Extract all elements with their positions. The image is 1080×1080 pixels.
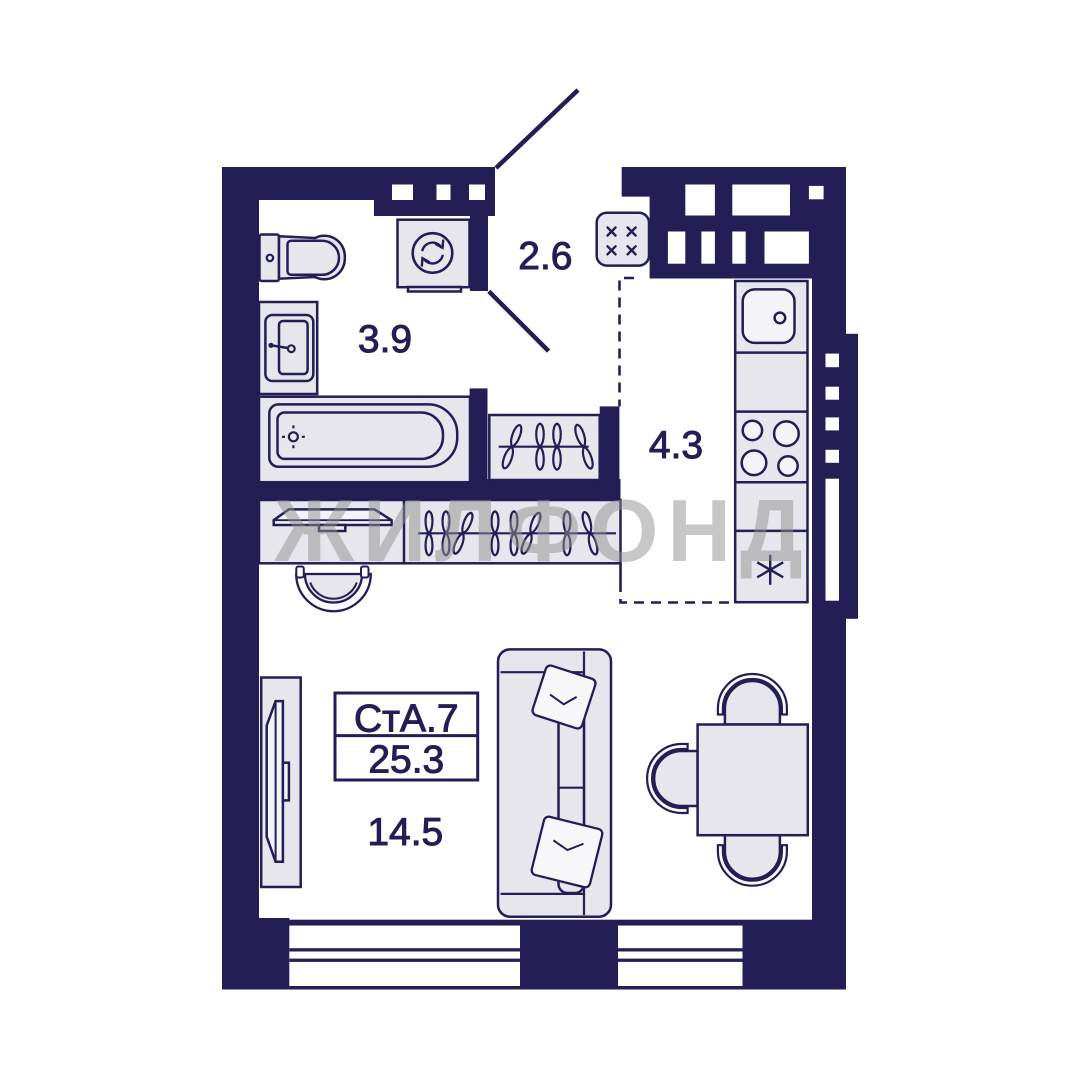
svg-text:25.3: 25.3 bbox=[368, 739, 444, 782]
svg-text:СтА.7: СтА.7 bbox=[354, 698, 459, 741]
svg-text:3.9: 3.9 bbox=[358, 318, 412, 361]
svg-text:4.3: 4.3 bbox=[649, 424, 703, 467]
svg-text:ЖИЛФОНД: ЖИЛФОНД bbox=[273, 481, 811, 580]
svg-text:2.6: 2.6 bbox=[518, 235, 572, 278]
svg-text:14.5: 14.5 bbox=[367, 811, 443, 854]
